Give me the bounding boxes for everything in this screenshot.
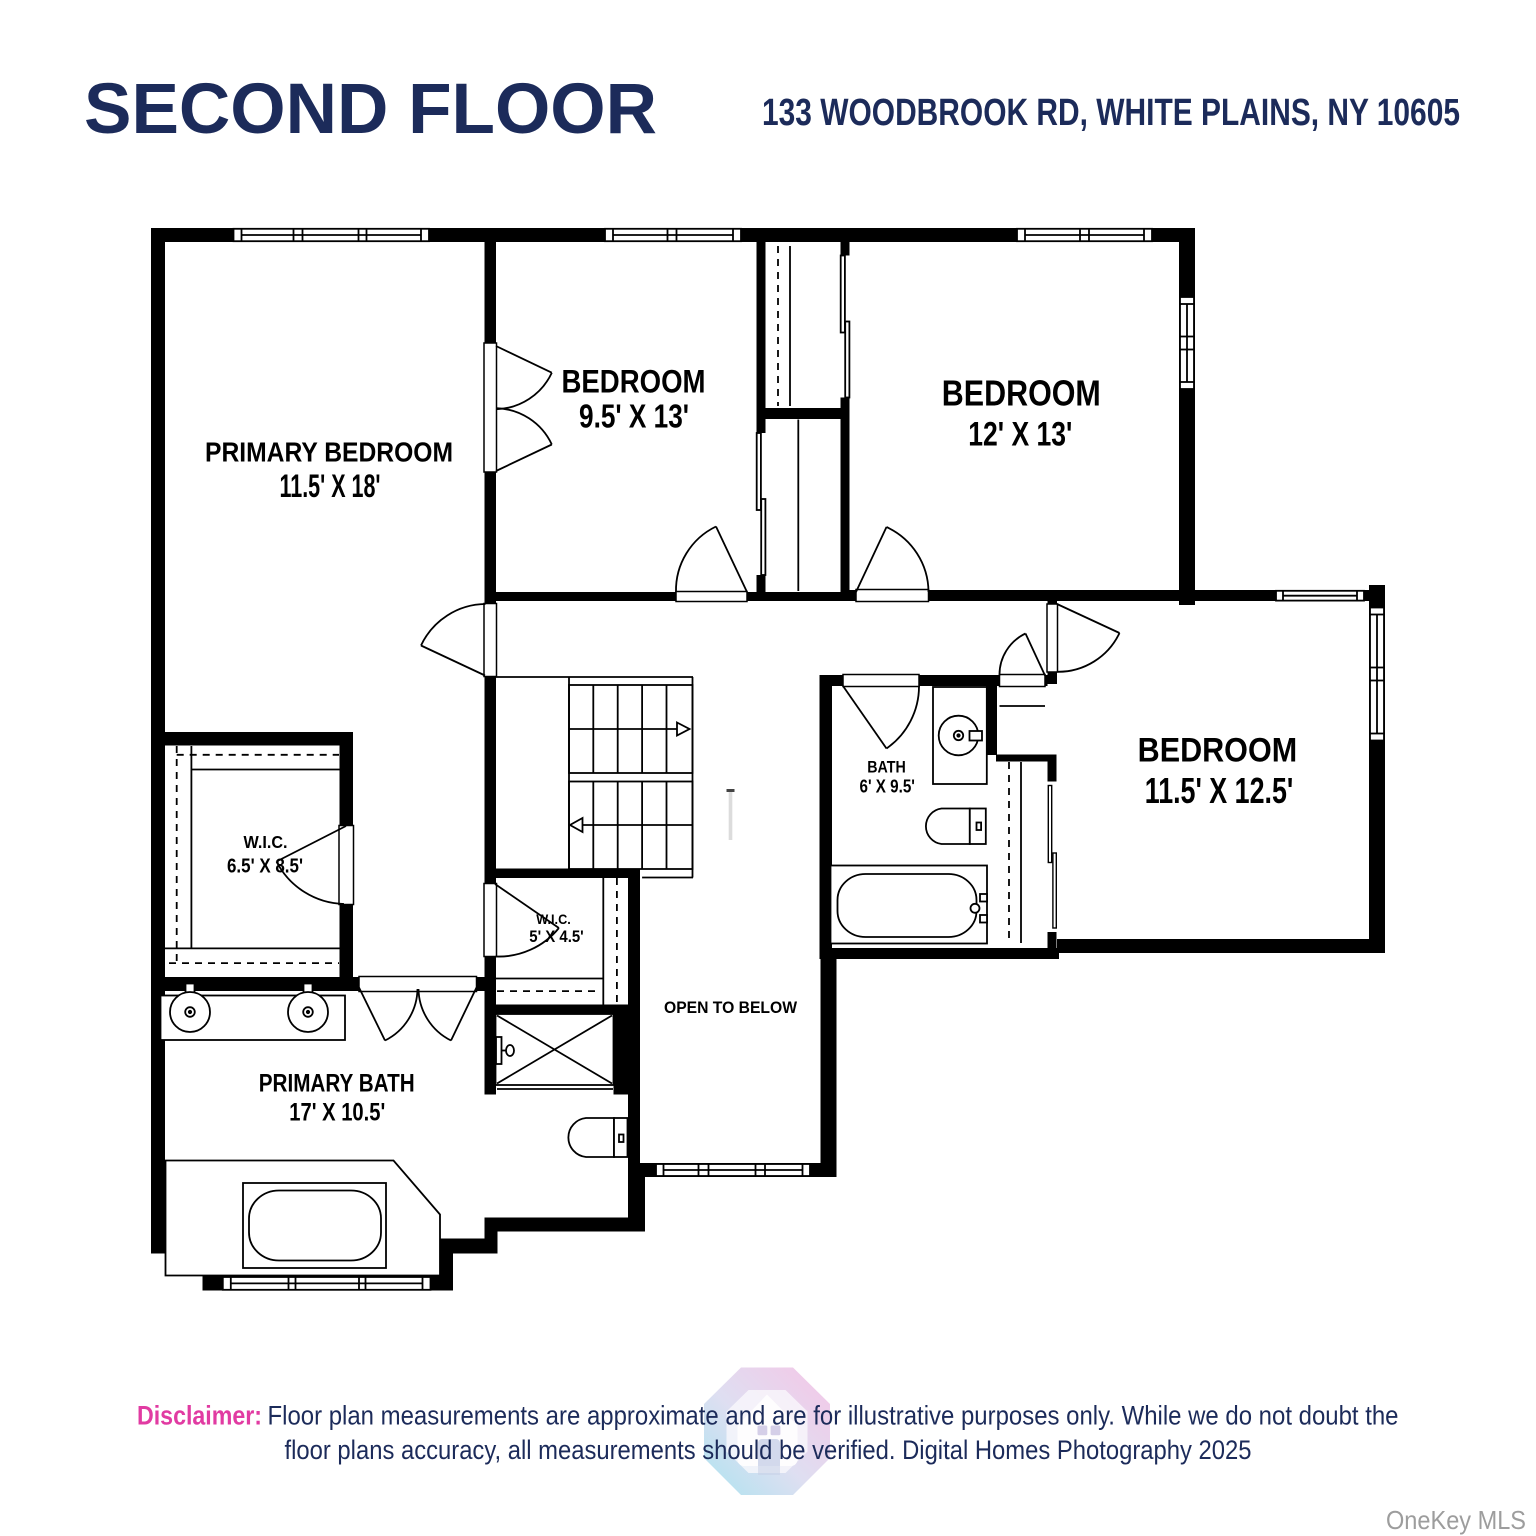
svg-text:BATH: BATH: [867, 758, 906, 777]
svg-text:12' X 13': 12' X 13': [968, 415, 1072, 453]
svg-text:BEDROOM: BEDROOM: [1138, 732, 1298, 770]
svg-text:OPEN TO BELOW: OPEN TO BELOW: [664, 998, 797, 1017]
svg-text:6.5' X 8.5': 6.5' X 8.5': [227, 856, 303, 878]
svg-text:5' X 4.5': 5' X 4.5': [529, 927, 584, 946]
svg-text:17' X 10.5': 17' X 10.5': [289, 1100, 385, 1127]
svg-text:floor plans accuracy, all meas: floor plans accuracy, all measurements s…: [285, 1435, 1252, 1465]
svg-text:BEDROOM: BEDROOM: [562, 364, 706, 400]
svg-text:W.I.C.: W.I.C.: [536, 911, 571, 927]
svg-text:PRIMARY BATH: PRIMARY BATH: [259, 1071, 415, 1098]
svg-text:SECOND FLOOR: SECOND FLOOR: [84, 70, 657, 149]
svg-text:OneKey MLS: OneKey MLS: [1386, 1505, 1526, 1535]
svg-text:9.5' X 13': 9.5' X 13': [579, 398, 689, 435]
svg-text:11.5' X 18': 11.5' X 18': [280, 468, 381, 504]
svg-text:6' X 9.5': 6' X 9.5': [860, 776, 915, 797]
svg-text:133 WOODBROOK RD, WHITE PLAINS: 133 WOODBROOK RD, WHITE PLAINS, NY 10605: [762, 92, 1460, 134]
svg-text:Disclaimer:: Disclaimer:: [137, 1401, 262, 1431]
svg-text:PRIMARY BEDROOM: PRIMARY BEDROOM: [205, 437, 453, 468]
svg-text:BEDROOM: BEDROOM: [942, 372, 1101, 413]
svg-text:W.I.C.: W.I.C.: [244, 832, 288, 852]
svg-text:Floor plan measurements are ap: Floor plan measurements are approximate …: [268, 1401, 1399, 1431]
svg-text:11.5' X 12.5': 11.5' X 12.5': [1145, 770, 1294, 811]
